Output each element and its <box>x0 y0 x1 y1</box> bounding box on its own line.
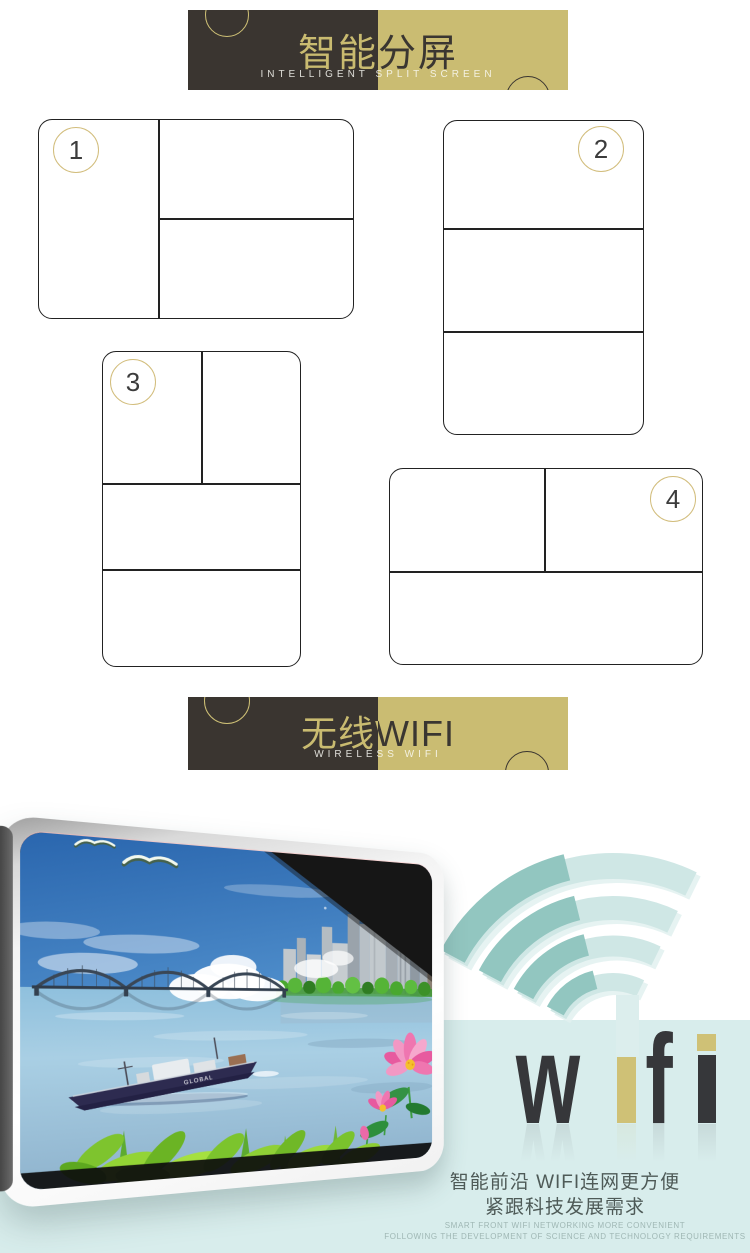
banner-split-screen: 智能分屏 INTELLIGENT SPLIT SCREEN <box>188 10 568 90</box>
divider-line <box>544 469 546 571</box>
footer-slogan: 智能前沿 WIFI连网更方便 紧跟科技发展需求 SMART FRONT WIFI… <box>370 1170 750 1242</box>
number-badge: 2 <box>578 126 624 172</box>
split-layout-4: 4 <box>389 468 703 665</box>
split-layout-1: 1 <box>38 119 354 319</box>
display-monitor: GLOBAL <box>1 814 444 1209</box>
wifi-letter-i-gold <box>617 1057 636 1123</box>
split-layout-3: 3 <box>102 351 301 667</box>
banner-subtitle: INTELLIGENT SPLIT SCREEN <box>188 69 568 80</box>
wifi-letter-i-dark <box>698 1055 716 1123</box>
divider-line <box>201 352 203 483</box>
divider-line <box>390 571 702 573</box>
divider-line <box>444 228 643 230</box>
banner-subtitle: WIRELESS WIFI <box>188 749 568 760</box>
wifi-letter-i-dot <box>697 1034 716 1051</box>
slogan-cn-line1: 智能前沿 WIFI连网更方便 <box>370 1170 750 1195</box>
monitor-screen: GLOBAL <box>20 831 432 1191</box>
slogan-en-line1: SMART FRONT WIFI NETWORKING MORE CONVENI… <box>370 1221 750 1231</box>
divider-line <box>103 483 300 485</box>
landscape-wallpaper: GLOBAL <box>20 831 432 1191</box>
slogan-en-line2: FOLLOWING THE DEVELOPMENT OF SCIENCE AND… <box>370 1232 750 1242</box>
wifi-arcs-dark-layer <box>453 867 595 1011</box>
number-badge: 4 <box>650 476 696 522</box>
banner-wireless-wifi: 无线WIFI WIRELESS WIFI <box>188 697 568 770</box>
number-badge: 3 <box>110 359 156 405</box>
divider-line <box>158 218 353 220</box>
wifi-wordmark: w f <box>460 1010 740 1170</box>
divider-line <box>103 569 300 571</box>
slogan-cn-line2: 紧跟科技发展需求 <box>370 1195 750 1220</box>
product-detail-page: 智能分屏 INTELLIGENT SPLIT SCREEN 1 2 3 4 无线… <box>0 0 750 1253</box>
split-layout-2: 2 <box>443 120 644 435</box>
divider-line <box>444 331 643 333</box>
number-badge: 1 <box>53 127 99 173</box>
wordmark-reflection-fade <box>460 1124 740 1170</box>
